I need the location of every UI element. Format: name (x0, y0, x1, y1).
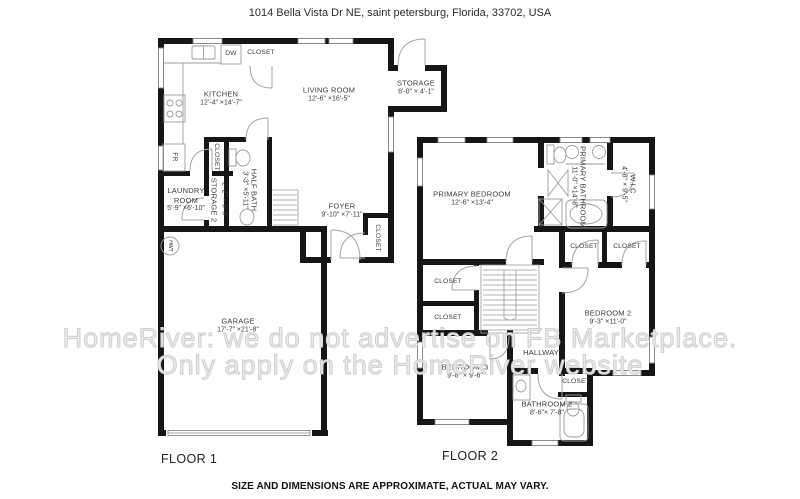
room-label-kitchen: KITCHEN12'-4" ×14'-7" (200, 90, 242, 109)
water-heater-label: HWT (167, 240, 173, 251)
room-label-garage: GARAGE17'-7" ×21'-8" (217, 317, 259, 336)
closet-label-foyer: CLOSET (373, 224, 381, 252)
room-label-primary-bathroom: PRIMARY BATHROOM11'-0" ×14'-8" (569, 146, 588, 228)
closet-label-bath: CLOSET (562, 378, 590, 386)
room-label-half-bath: HALF BATH3'-3" ×5'-11" (240, 169, 259, 212)
room-label-foyer: FOYER9'-10" ×7'-11" (321, 202, 362, 221)
room-label-storage2: 2'-2" × 6'-9"STORAGE 2 (209, 178, 228, 223)
dishwasher-label: DW (225, 50, 236, 58)
room-label-bedroom2: BEDROOM 29'-3" ×11'-0" (585, 309, 632, 328)
disclaimer-text: SIZE AND DIMENSIONS ARE APPROXIMATE, ACT… (231, 481, 548, 492)
halfbath-sink-icon (240, 209, 254, 225)
floor1-windows (159, 39, 394, 171)
closet-label-c: CLOSET (434, 278, 462, 286)
room-label-bedroom3: BEDROOM 39'-8" × 9'-6" (442, 363, 489, 382)
floor1-stairs-icon (272, 190, 298, 226)
room-label-wic: W.I.C4'-8" × 9'-5" (619, 166, 638, 202)
room-label-storage: STORAGE6'-0" × 4'-1" (397, 79, 435, 98)
closet-label-b: CLOSET (613, 243, 641, 251)
fridge-label: FR (170, 152, 178, 161)
closet-label-a: CLOSET (570, 243, 598, 251)
closet-label-kitchen: CLOSET (247, 49, 275, 57)
floorplan-page: 1014 Bella Vista Dr NE, saint petersburg… (0, 0, 800, 499)
closet-label-d: CLOSET (434, 314, 462, 322)
room-label-primary-bedroom: PRIMARY BEDROOM12'-6" ×13'-4" (433, 190, 511, 209)
primary-toilet-icon (547, 145, 566, 164)
room-label-laundry: LAUNDRYROOM 5'-9" ×6'-10" (167, 186, 205, 214)
bath2-vanity-icon (513, 375, 530, 400)
room-label-hallway: HALLWAY (523, 348, 559, 358)
garage-door (166, 429, 312, 437)
room-label-living-room: LIVING ROOM12'-6" ×16'-5" (303, 86, 355, 105)
closet-label-hall: CLOSET (212, 143, 220, 171)
stove-icon (164, 95, 185, 122)
room-label-bathroom2: BATHROOM 28'-6"× 7'-8" (521, 400, 572, 419)
kitchen-sink-icon (192, 46, 215, 59)
halfbath-toilet-icon (229, 149, 250, 166)
floor2-tag: FLOOR 2 (442, 449, 498, 463)
floorplan-drawing (0, 0, 800, 499)
floor1-tag: FLOOR 1 (161, 452, 217, 466)
floor2-stairs-icon (481, 265, 539, 333)
